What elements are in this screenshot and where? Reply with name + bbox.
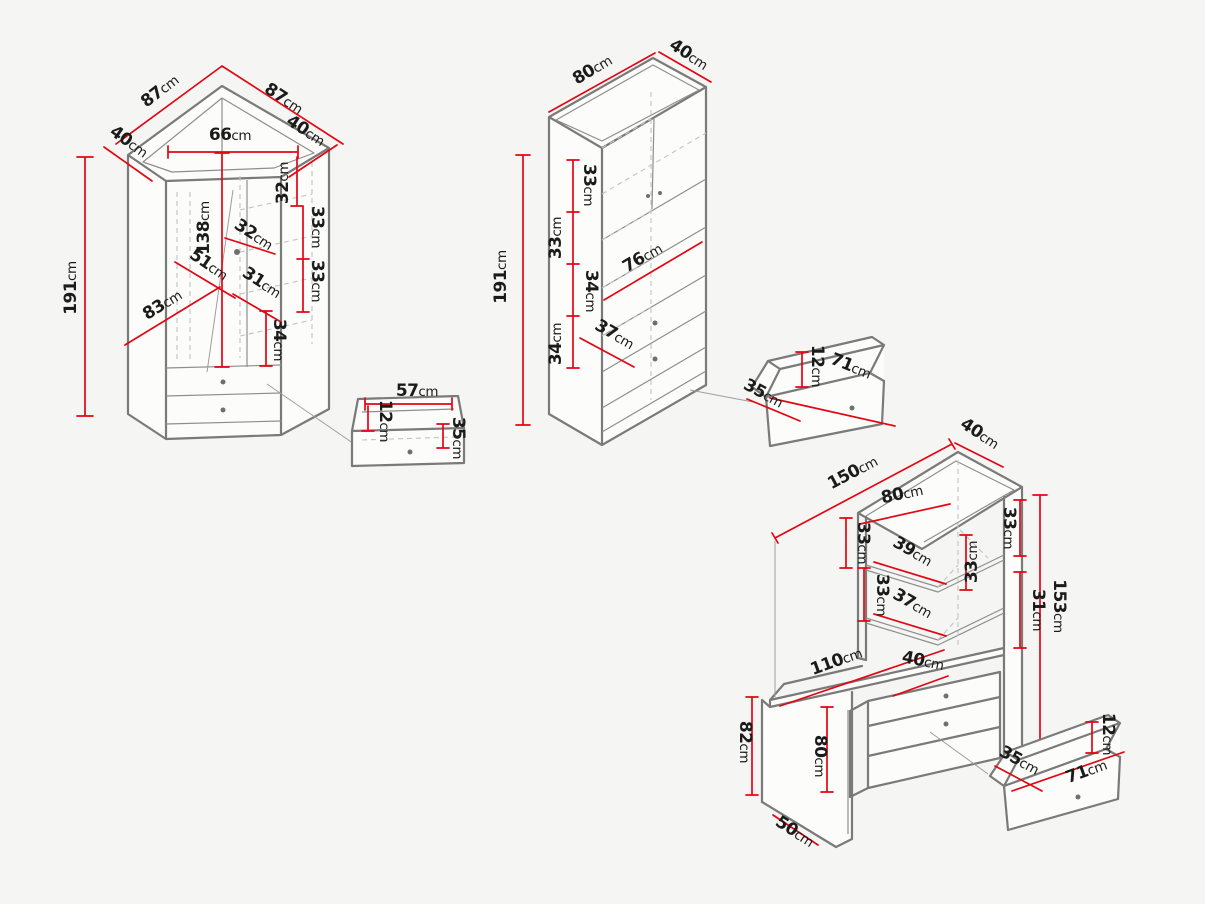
dim-desk-shelf-width-37: 37cm [889, 584, 936, 622]
dim-bookcase-shelf-34b: 34cm [546, 323, 566, 365]
furniture-dimensions-diagram: 87cm 87cm 40cm 40cm 66cm 138cm 32cm 33cm… [0, 0, 1205, 904]
dim-wardrobe-drawer-height: 12cm [375, 400, 395, 442]
dim-wardrobe-drawer-width: 57cm [396, 381, 438, 401]
dim-desk-shelf-33b: 33cm [853, 522, 873, 564]
dim-wardrobe-shelf-col-33a: 33cm [307, 206, 327, 248]
dim-bookcase-shelf-34a: 34cm [581, 270, 601, 312]
dim-bookcase-shelf-33b: 33cm [546, 217, 566, 259]
bookcase-drawer-detail: 12cm 71cm 35cm [740, 337, 895, 446]
drawer-handle [850, 406, 855, 411]
dim-desk-height: 82cm [735, 721, 755, 763]
furniture-dimension-sheet: 87cm 87cm 40cm 40cm 66cm 138cm 32cm 33cm… [0, 0, 1205, 904]
dim-bookcase-shelf-33a: 33cm [579, 164, 599, 206]
dim-wardrobe-drawer-depth: 35cm [448, 417, 468, 459]
drawer-handle [408, 450, 413, 455]
wardrobe-drawer-handle [221, 380, 226, 385]
dim-bookcase-drawer-height: 12cm [807, 345, 827, 387]
bookcase-drawer-handle [653, 357, 658, 362]
dim-wardrobe-top-left: 87cm [137, 70, 183, 112]
dim-bookcase-height: 191cm [491, 250, 511, 303]
dim-desk-total-height: 153cm [1049, 579, 1069, 632]
bookcase-drawer-handle [653, 321, 658, 326]
drawer-handle [1076, 795, 1081, 800]
dim-desk-leg-height: 80cm [810, 735, 830, 777]
dim-wardrobe-height: 191cm [61, 261, 81, 314]
dim-desk-shelf-31: 31cm [1028, 589, 1048, 631]
bookcase-drawing: 80cm 40cm 191cm 33cm 33cm 34cm 34cm 76cm… [491, 35, 753, 445]
corner-wardrobe-drawing: 87cm 87cm 40cm 40cm 66cm 138cm 32cm 33cm… [61, 66, 360, 448]
dim-wardrobe-shelf-col-34: 34cm [269, 319, 289, 361]
dim-desk-shelf-33c: 33cm [872, 574, 892, 616]
dim-desk-shelf-33a: 33cm [999, 507, 1019, 549]
desk-drawer-handle [944, 694, 949, 699]
dim-desk-length: 110cm [808, 643, 865, 680]
bookcase-door-handle [658, 191, 662, 195]
bookcase-door-handle [646, 194, 650, 198]
wardrobe-drawer-detail: 57cm 12cm 35cm [352, 381, 468, 466]
wardrobe-door-handle [234, 249, 240, 255]
desk-drawer-handle [944, 722, 949, 727]
dim-wardrobe-shelf-col-32: 32cm [273, 162, 293, 204]
wardrobe-drawer-handle [221, 408, 226, 413]
dim-wardrobe-front-width: 66cm [209, 125, 251, 145]
dim-desk-shelf-33d: 33cm [962, 541, 982, 583]
dim-wardrobe-shelf-col-33b: 33cm [307, 260, 327, 302]
dim-desk-drawer-height: 12cm [1098, 713, 1118, 755]
dim-desk-total-width: 150cm [824, 451, 881, 494]
